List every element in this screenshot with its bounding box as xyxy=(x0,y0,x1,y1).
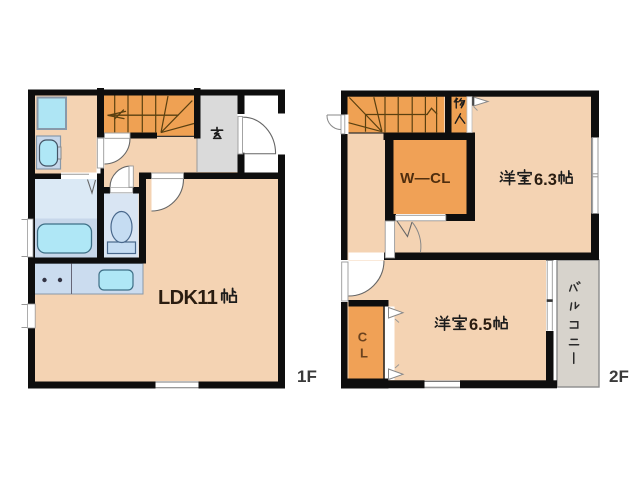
svg-text:6.5: 6.5 xyxy=(469,316,492,334)
svg-text:LDK11: LDK11 xyxy=(158,287,218,309)
svg-text:C: C xyxy=(358,330,368,345)
svg-text:L: L xyxy=(360,346,368,361)
svg-text:2F: 2F xyxy=(609,367,629,386)
svg-text:W—CL: W—CL xyxy=(400,170,451,187)
svg-text:1F: 1F xyxy=(297,367,317,386)
svg-text:6.3: 6.3 xyxy=(534,171,557,189)
